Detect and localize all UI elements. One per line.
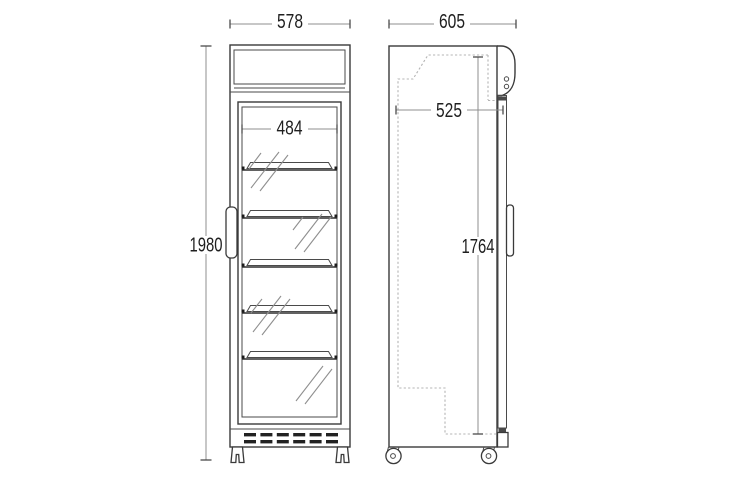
front-door-handle [226,207,237,258]
shelf-3 [242,260,338,268]
front-canopy [230,50,350,92]
dim-side-inner-depth: 525 [396,100,503,122]
glass-reflection-marks [249,152,332,404]
side-door-handle [507,205,514,256]
dimension-drawing: 578 1980 484 [0,0,750,480]
dim-side-inner-depth-label: 525 [436,100,462,122]
dim-front-height-label: 1980 [190,235,223,257]
dim-front-width-label: 578 [277,11,303,33]
side-door-kick [498,433,509,448]
switch-button-1 [504,77,508,81]
front-cabinet-body [230,45,350,447]
castor-left [386,447,401,464]
side-view: 605 525 [386,11,516,464]
front-foot-left [231,447,244,463]
dim-front-width: 578 [230,11,350,33]
front-view: 578 1980 484 [187,11,350,463]
dim-front-inner-width-label: 484 [277,118,303,140]
switch-button-2 [504,84,508,88]
dim-front-inner-width: 484 [242,118,337,140]
dim-side-depth-label: 605 [439,11,465,33]
front-vent-grille [230,429,350,443]
dim-side-depth: 605 [389,11,516,33]
shelf-1 [242,163,338,171]
dim-side-inner-height-label: 1764 [462,236,495,258]
drawing-canvas: 578 1980 484 [0,0,750,480]
side-door [498,96,514,448]
castor-right [481,447,496,464]
shelf-2 [242,211,338,219]
shelf-5 [242,352,338,360]
side-canopy-cap [497,46,515,96]
front-foot-right [336,447,349,463]
dim-front-height: 1980 [187,46,225,460]
